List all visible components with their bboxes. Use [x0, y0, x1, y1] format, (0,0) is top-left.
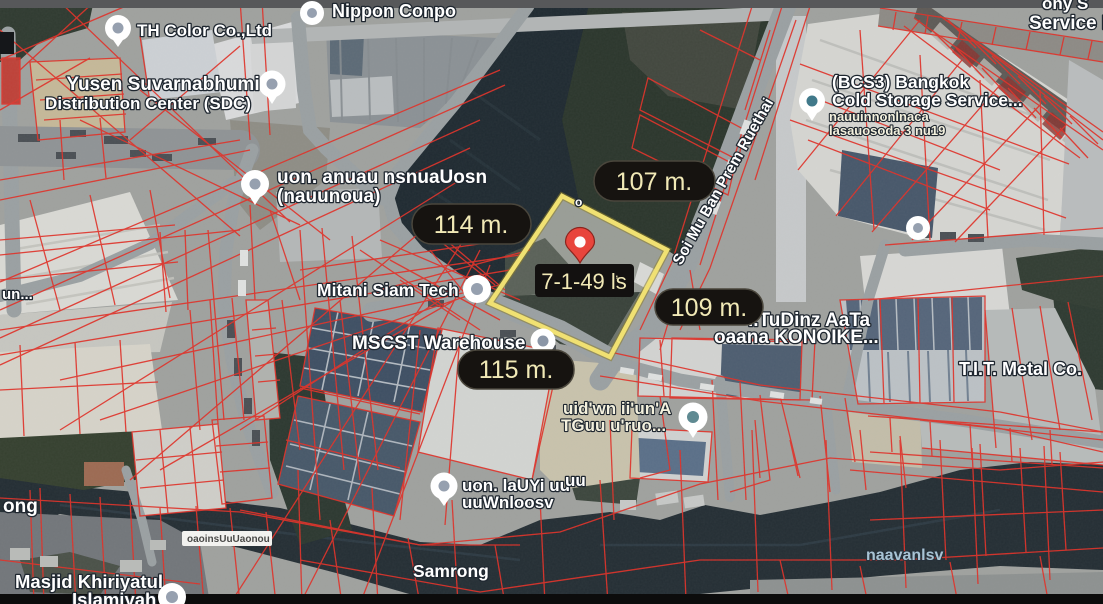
svg-text:ony S: ony S [1042, 0, 1088, 13]
svg-text:oaana KONOIKE...: oaana KONOIKE... [714, 327, 879, 348]
svg-text:Yusen Suvarnabhumi: Yusen Suvarnabhumi [66, 74, 259, 95]
svg-text:un...: un... [2, 286, 33, 303]
svg-text:lasauosoda 3 nu19: lasauosoda 3 nu19 [829, 123, 945, 138]
svg-text:(BCS3) Bangkok: (BCS3) Bangkok [832, 72, 969, 92]
svg-text:109 m.: 109 m. [671, 294, 747, 322]
svg-text:uuWnloosv: uuWnloosv [462, 493, 554, 512]
svg-text:nauuinnonlnaca: nauuinnonlnaca [829, 109, 929, 124]
svg-text:7-1-49 ls: 7-1-49 ls [541, 269, 627, 294]
svg-text:TH Color Co.,Ltd: TH Color Co.,Ltd [137, 21, 272, 40]
svg-text:(nauunoua): (nauunoua) [277, 186, 380, 207]
svg-text:oaoinsUuUaonou: oaoinsUuUaonou [187, 534, 270, 545]
svg-text:114 m.: 114 m. [434, 211, 509, 239]
svg-text:T.I.T. Metal Co.: T.I.T. Metal Co. [959, 359, 1082, 379]
svg-text:uon. anuau nsnuaUosn: uon. anuau nsnuaUosn [277, 167, 487, 188]
svg-text:Samrong: Samrong [413, 561, 489, 581]
svg-text:Cold Storage Service...: Cold Storage Service... [832, 90, 1023, 110]
svg-text:ong: ong [3, 496, 38, 517]
svg-text:Islamiyah: Islamiyah [72, 589, 156, 604]
svg-text:107 m.: 107 m. [616, 168, 692, 196]
svg-text:o: o [575, 195, 582, 209]
svg-text:Distribution Center (SDC): Distribution Center (SDC) [45, 94, 251, 113]
svg-text:,: , [615, 265, 619, 280]
svg-text:Nippon Conpo: Nippon Conpo [332, 1, 456, 21]
svg-text:naavanlsv: naavanlsv [866, 547, 943, 564]
svg-text:Service I: Service I [1029, 13, 1103, 34]
svg-text:uu: uu [565, 471, 586, 490]
svg-text:Mitani Siam Tech: Mitani Siam Tech [317, 280, 459, 300]
svg-text:TGuu u'ruo...: TGuu u'ruo... [561, 416, 666, 435]
svg-text:115 m.: 115 m. [479, 356, 554, 384]
